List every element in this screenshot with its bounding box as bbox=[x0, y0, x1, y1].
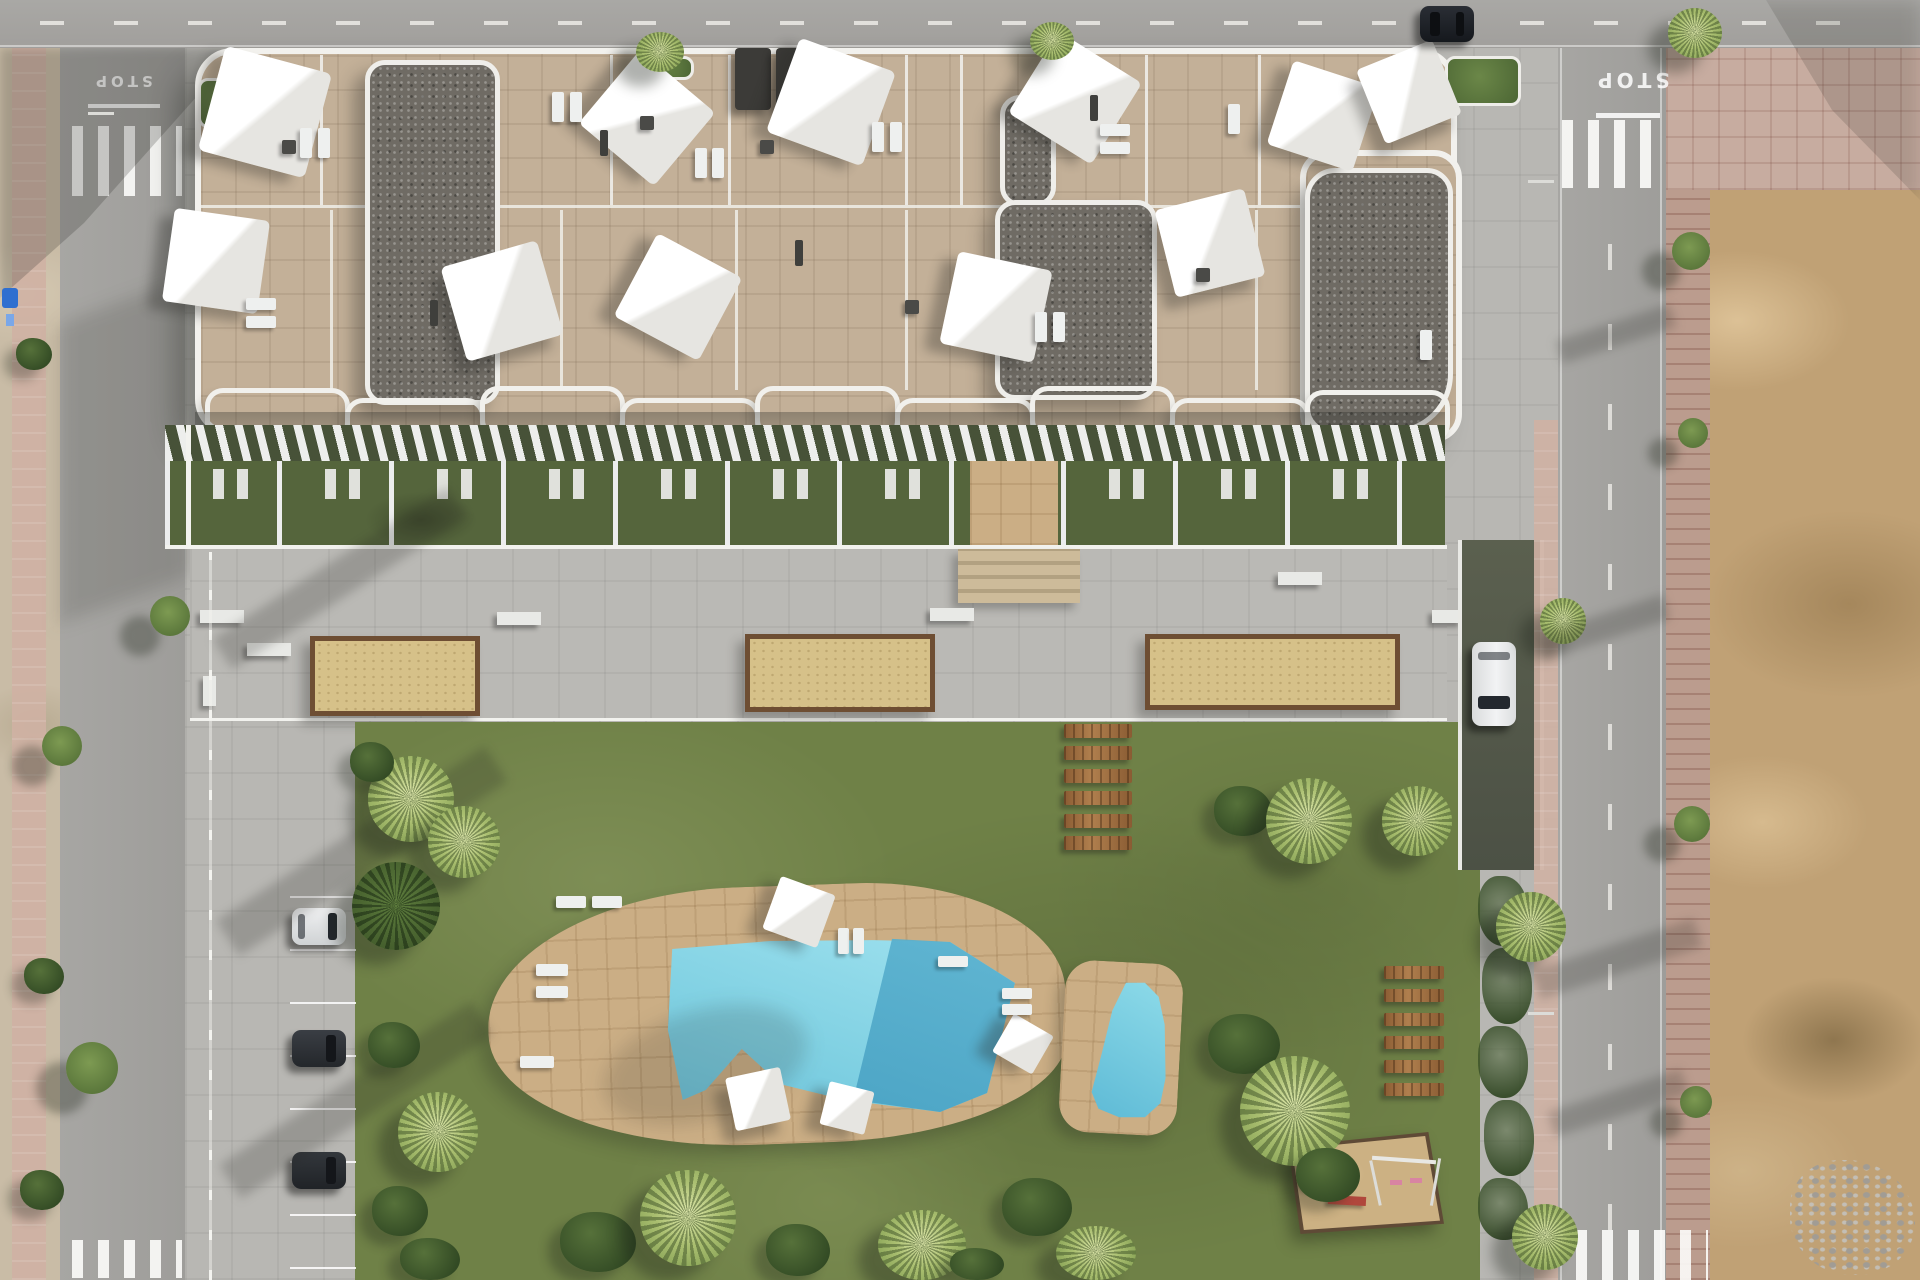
parking-line bbox=[290, 1267, 356, 1269]
street-tree bbox=[1674, 806, 1710, 842]
deck-lounger bbox=[536, 986, 568, 998]
deck-lounger bbox=[938, 956, 968, 967]
plank bbox=[1384, 1060, 1444, 1073]
left-road bbox=[60, 48, 185, 1280]
bush bbox=[20, 1170, 64, 1210]
street-lamp bbox=[1528, 180, 1554, 183]
sand-planter bbox=[745, 634, 935, 712]
bush bbox=[372, 1186, 428, 1236]
roof-lounger bbox=[712, 148, 724, 178]
stair-tower bbox=[735, 48, 771, 110]
street-tree bbox=[66, 1042, 118, 1094]
roof-lounger bbox=[1100, 124, 1130, 136]
bush bbox=[950, 1248, 1004, 1280]
roof-lounger bbox=[318, 128, 330, 158]
roof-divider bbox=[735, 210, 738, 390]
deck-lounger bbox=[1002, 988, 1032, 999]
roof-divider bbox=[728, 55, 731, 205]
plank bbox=[1064, 836, 1132, 850]
right-road-center-dashes bbox=[1608, 200, 1612, 1230]
deck-lounger bbox=[1002, 1004, 1032, 1015]
plank bbox=[1064, 814, 1132, 828]
parking-line bbox=[290, 1214, 356, 1216]
palm-tree bbox=[636, 32, 684, 72]
garden-patio bbox=[970, 461, 1058, 545]
roof-table bbox=[640, 116, 654, 130]
roof-hatch bbox=[795, 240, 803, 266]
bush bbox=[16, 338, 52, 370]
sand-planter bbox=[310, 636, 480, 716]
bush bbox=[1002, 1178, 1072, 1236]
deck-lounger bbox=[853, 928, 864, 954]
roof-lounger bbox=[300, 128, 312, 158]
palm-tree bbox=[1030, 22, 1074, 60]
bush bbox=[24, 958, 64, 994]
plank bbox=[1064, 746, 1132, 760]
roof-lounger bbox=[872, 122, 884, 152]
roof-lounger bbox=[1420, 330, 1432, 360]
palm-tree bbox=[428, 806, 500, 878]
garden-west-wall bbox=[186, 425, 191, 549]
bush bbox=[400, 1238, 460, 1280]
bush bbox=[1214, 786, 1272, 836]
car-on-road-black bbox=[1420, 6, 1474, 42]
palm-tree bbox=[1668, 8, 1722, 58]
recycling-bins-blue bbox=[2, 288, 18, 308]
palm-tree bbox=[352, 862, 440, 950]
palm-tree bbox=[1266, 778, 1352, 864]
terrace-bench bbox=[497, 612, 541, 625]
street-tree bbox=[1672, 232, 1710, 270]
roof-hatch bbox=[1090, 95, 1098, 121]
plank bbox=[1064, 791, 1132, 805]
roof-table bbox=[905, 300, 919, 314]
roof-lounger bbox=[246, 298, 276, 310]
crosswalk-right-top bbox=[1562, 120, 1662, 188]
palm-tree bbox=[1056, 1226, 1136, 1280]
hedge bbox=[1478, 1026, 1528, 1098]
top-road-center-dashes bbox=[40, 21, 1880, 25]
roof-divider bbox=[905, 55, 908, 205]
deck-lounger bbox=[838, 928, 849, 954]
crosswalk-right-bottom bbox=[1576, 1230, 1708, 1280]
east-curb-strip bbox=[1534, 420, 1558, 1280]
right-brick-sidewalk bbox=[1666, 190, 1710, 1280]
palm-tree bbox=[1382, 786, 1452, 856]
street-tree bbox=[1678, 418, 1708, 448]
shade-sail bbox=[939, 251, 1052, 363]
pergola-strip bbox=[165, 425, 1445, 461]
bush bbox=[766, 1224, 830, 1276]
roof-lounger bbox=[1100, 142, 1130, 154]
roof-lounger bbox=[246, 316, 276, 328]
roof-table bbox=[1196, 268, 1210, 282]
terrace-bench bbox=[1278, 572, 1322, 585]
roof-lounger bbox=[552, 92, 564, 122]
bush bbox=[368, 1022, 420, 1068]
palm-tree bbox=[398, 1092, 478, 1172]
street-tree bbox=[42, 726, 82, 766]
bush bbox=[350, 742, 394, 782]
deck-lounger bbox=[520, 1056, 554, 1068]
roof-divider bbox=[960, 55, 963, 205]
bush bbox=[560, 1212, 636, 1272]
right-road-edge-west bbox=[1560, 48, 1562, 1280]
aerial-scene: STOP STOP bbox=[0, 0, 1920, 1280]
private-gardens-row bbox=[165, 461, 1445, 545]
plank bbox=[1064, 769, 1132, 783]
roof-hatch bbox=[600, 130, 608, 156]
sand-planter bbox=[1145, 634, 1400, 710]
street-lamp bbox=[88, 112, 114, 115]
terrace-steps bbox=[958, 549, 1080, 603]
garden-loungers bbox=[191, 469, 1435, 499]
deck-shade-sail bbox=[725, 1067, 791, 1131]
bush bbox=[1296, 1148, 1360, 1202]
swing-seat bbox=[1410, 1178, 1422, 1183]
terrace-bench bbox=[200, 610, 244, 623]
parking-line bbox=[290, 1002, 356, 1004]
plank bbox=[1384, 1036, 1444, 1049]
deck-lounger bbox=[592, 896, 622, 908]
roof-divider bbox=[330, 210, 333, 390]
street-lamp bbox=[1528, 1012, 1554, 1015]
roof-divider bbox=[1258, 55, 1261, 205]
palm-tree bbox=[1496, 892, 1566, 962]
plank bbox=[1384, 989, 1444, 1002]
esplanade-tree bbox=[150, 596, 190, 636]
roof-lounger bbox=[695, 148, 707, 178]
top-road-curb-line bbox=[0, 45, 1920, 47]
stop-line-right bbox=[1596, 113, 1660, 118]
roof-table bbox=[760, 140, 774, 154]
roof-divider bbox=[1145, 55, 1148, 205]
car-on-ramp-white bbox=[1472, 642, 1516, 726]
deck-lounger bbox=[556, 896, 586, 908]
parked-car-dark bbox=[292, 1030, 346, 1067]
plank-path bbox=[1064, 724, 1132, 850]
roof-hatch bbox=[430, 300, 438, 326]
swing-seat bbox=[1390, 1180, 1402, 1185]
roof-lounger bbox=[1035, 312, 1047, 342]
roof-lounger bbox=[1228, 104, 1240, 134]
roof-table bbox=[282, 140, 296, 154]
plank bbox=[1384, 1013, 1444, 1026]
hedge bbox=[1484, 1100, 1534, 1176]
deck-lounger bbox=[536, 964, 568, 976]
plank bbox=[1384, 966, 1444, 979]
roof-lounger bbox=[890, 122, 902, 152]
parking-line bbox=[290, 949, 356, 951]
terrace-bench bbox=[930, 608, 974, 621]
palm-tree bbox=[640, 1170, 736, 1266]
plank bbox=[1384, 1083, 1444, 1096]
roof-divider bbox=[560, 210, 563, 390]
crosswalk-left-bottom bbox=[72, 1240, 182, 1278]
palm-tree bbox=[1512, 1204, 1578, 1270]
lawn-plank-loungers bbox=[1384, 966, 1444, 1096]
roof-lounger bbox=[570, 92, 582, 122]
corner-hedge-patch bbox=[1445, 56, 1521, 106]
stop-marking-right: STOP bbox=[1594, 68, 1670, 92]
terrace-south-edge bbox=[190, 718, 1447, 721]
roof-lounger bbox=[1053, 312, 1065, 342]
property-fence-west bbox=[209, 552, 212, 1280]
plank bbox=[1064, 724, 1132, 738]
